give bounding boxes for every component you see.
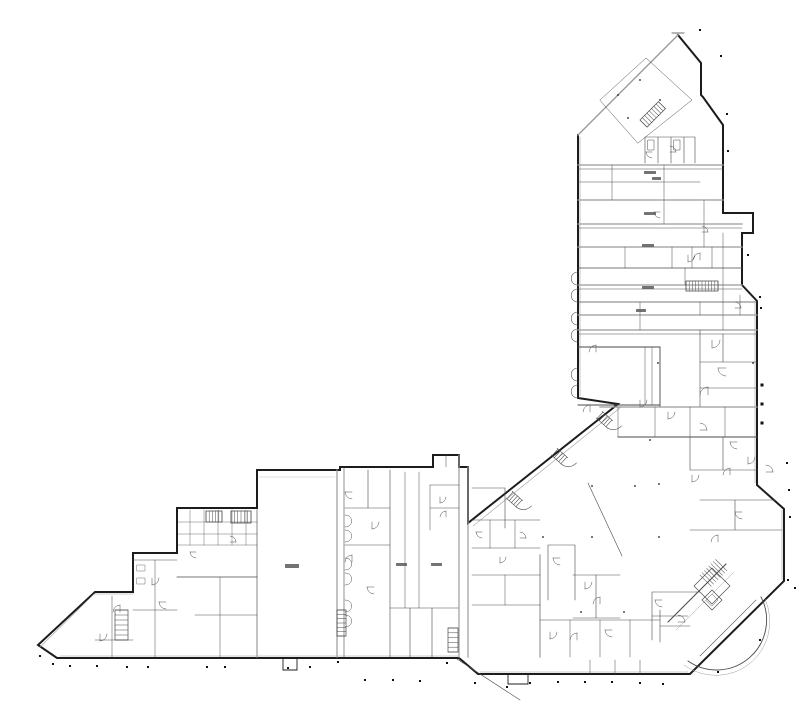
stair-hatching [115,102,727,652]
column-marker-dot [639,79,641,81]
door-swing [152,578,159,585]
column-marker-dot [287,667,289,669]
hatch-block [448,628,458,652]
column-marker-dot [662,683,664,685]
door-swing [718,368,726,376]
column-marker-dot [717,671,719,673]
door-swing [553,558,560,565]
door-swing [646,152,652,158]
door-swing [550,632,557,639]
hatch-block [640,102,665,127]
column-marker-dot [309,666,311,668]
door-swing [735,512,742,519]
illegible-room-label [636,309,646,312]
door-swing [159,602,166,609]
illegible-room-label [396,563,407,566]
hatch-block [115,610,128,640]
column-marker-dot [787,579,789,581]
door-swing [711,535,718,542]
column-marker-dot [623,611,625,613]
column-marker-dot [726,113,728,115]
door-swing [605,630,612,637]
door-swing [440,497,446,503]
door-swing [372,522,379,529]
door-swing [190,552,196,558]
column-marker-dot [747,254,749,256]
column-marker-dot [126,666,128,668]
column-marker-dot [794,587,796,589]
door-swing [712,340,720,348]
door-swing [766,465,773,472]
hatch-block [231,511,251,523]
column-markers [39,29,796,688]
hatch-block [206,511,222,522]
column-marker-dot [659,99,661,101]
walls-and-partitions [38,33,784,700]
column-marker-dot [39,655,41,657]
column-marker-dot [760,307,762,309]
illegible-room-label [285,564,299,568]
door-swing [700,423,707,430]
column-marker-dot [634,485,636,487]
column-marker-dot [617,94,619,96]
door-swing [476,532,482,538]
column-marker-dot [786,462,788,464]
column-marker-dot [761,384,764,387]
door-swing [730,442,737,449]
door-swing [367,587,374,594]
door-swing [655,600,662,607]
floor-plan-canvas [0,0,800,718]
column-marker-dot [761,403,764,406]
entry-canopy [506,490,531,514]
column-marker-dot [761,422,764,425]
illegible-room-label [652,177,661,180]
door-swing [748,457,755,464]
column-marker-dot [96,665,98,667]
illegible-room-label [642,286,654,289]
door-swing [668,412,675,419]
column-marker-dot [147,666,149,668]
column-marker-dot [752,362,754,364]
door-swing [640,400,647,407]
column-marker-dot [611,681,613,683]
door-swing [440,511,446,517]
hatch-block [700,559,727,586]
column-marker-dot [557,681,559,683]
column-marker-dot [364,679,366,681]
door-swing [589,345,596,352]
door-swing [520,532,526,538]
column-marker-dot [591,485,593,487]
hatch-block [686,281,718,291]
column-marker-dot [69,665,71,667]
illegible-room-label [644,212,656,215]
column-marker-dot [542,536,544,538]
entry-canopy [596,410,621,434]
entry-canopies [506,410,621,514]
column-marker-dot [584,681,586,683]
illegible-room-label [644,171,656,174]
column-marker-dot [337,661,339,663]
illegible-room-label [642,244,654,247]
door-swing [113,605,120,612]
column-marker-dot [788,489,790,491]
column-marker-dot [658,536,660,538]
column-marker-dot [699,29,701,31]
column-marker-dot [789,516,791,518]
column-marker-dot [591,536,593,538]
column-marker-dot [657,362,659,364]
column-marker-dot [52,663,54,665]
column-marker-dot [627,117,629,119]
column-marker-dot [759,296,761,298]
door-swing [692,475,699,482]
column-marker-dot [392,679,394,681]
door-swing [345,492,352,499]
column-marker-dot [720,55,722,57]
column-marker-dot [727,150,729,152]
door-swing [230,536,236,542]
column-marker-dot [224,666,226,668]
column-marker-dot [580,611,582,613]
column-marker-dot [649,439,651,441]
column-marker-dot [658,483,660,485]
column-marker-dot [446,662,448,664]
column-marker-dot [206,666,208,668]
column-marker-dot [506,686,508,688]
column-marker-dot [639,682,641,684]
illegible-room-label [431,563,442,566]
door-swing [593,597,600,604]
column-marker-dot [474,682,476,684]
door-swings [100,146,773,641]
floor-plan-page [0,0,800,718]
door-swing [723,468,730,475]
door-swing [583,405,590,412]
door-swing [500,557,506,563]
entry-canopy [551,447,576,471]
room-labels-illegible [285,171,661,568]
column-marker-dot [419,680,421,682]
column-marker-dot [759,639,761,641]
door-swing [702,226,708,232]
door-swing [585,582,592,589]
column-marker-dot [529,682,531,684]
door-swing [570,633,577,640]
hatch-block [337,610,346,636]
